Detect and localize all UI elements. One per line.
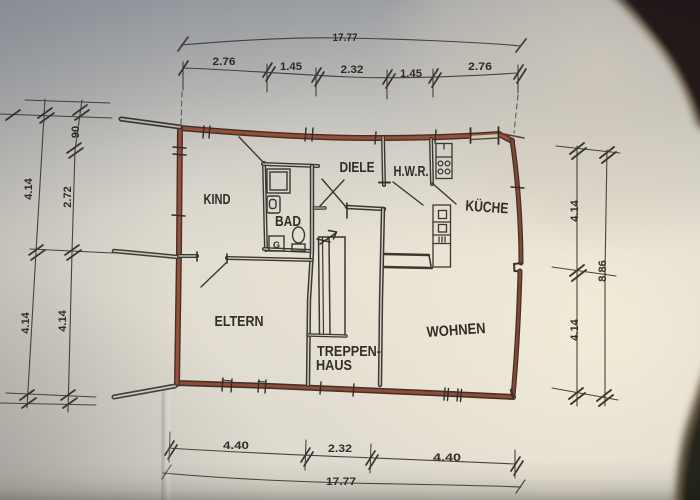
svg-text:1.45: 1.45: [400, 68, 422, 80]
svg-text:17.77: 17.77: [326, 476, 356, 488]
svg-text:4.14: 4.14: [569, 318, 581, 340]
svg-text:HAUS: HAUS: [316, 357, 352, 374]
svg-text:2.32: 2.32: [341, 64, 364, 76]
svg-text:8.86: 8.86: [597, 260, 609, 281]
svg-text:G: G: [273, 240, 280, 250]
svg-text:H.W.R.: H.W.R.: [394, 163, 429, 180]
svg-text:4.14: 4.14: [569, 199, 581, 221]
svg-text:2.76: 2.76: [468, 61, 492, 73]
svg-text:KÜCHE: KÜCHE: [465, 198, 509, 218]
svg-text:DIELE: DIELE: [340, 159, 375, 176]
svg-text:4.14: 4.14: [57, 309, 69, 331]
svg-text:2.76: 2.76: [213, 56, 236, 68]
svg-text:17.77: 17.77: [333, 32, 358, 44]
svg-text:2.72: 2.72: [62, 186, 74, 207]
svg-text:2.32: 2.32: [328, 443, 352, 455]
svg-text:4.40: 4.40: [223, 440, 249, 452]
svg-text:WOHNEN: WOHNEN: [426, 320, 486, 341]
svg-text:KIND: KIND: [204, 191, 231, 208]
svg-text:4.40: 4.40: [433, 452, 461, 464]
svg-text:BAD: BAD: [275, 213, 301, 230]
svg-text:4.14: 4.14: [20, 311, 32, 333]
svg-text:90: 90: [70, 126, 82, 138]
svg-text:4.14: 4.14: [23, 177, 35, 199]
svg-text:1.45: 1.45: [280, 61, 302, 73]
svg-text:ELTERN: ELTERN: [215, 313, 264, 330]
